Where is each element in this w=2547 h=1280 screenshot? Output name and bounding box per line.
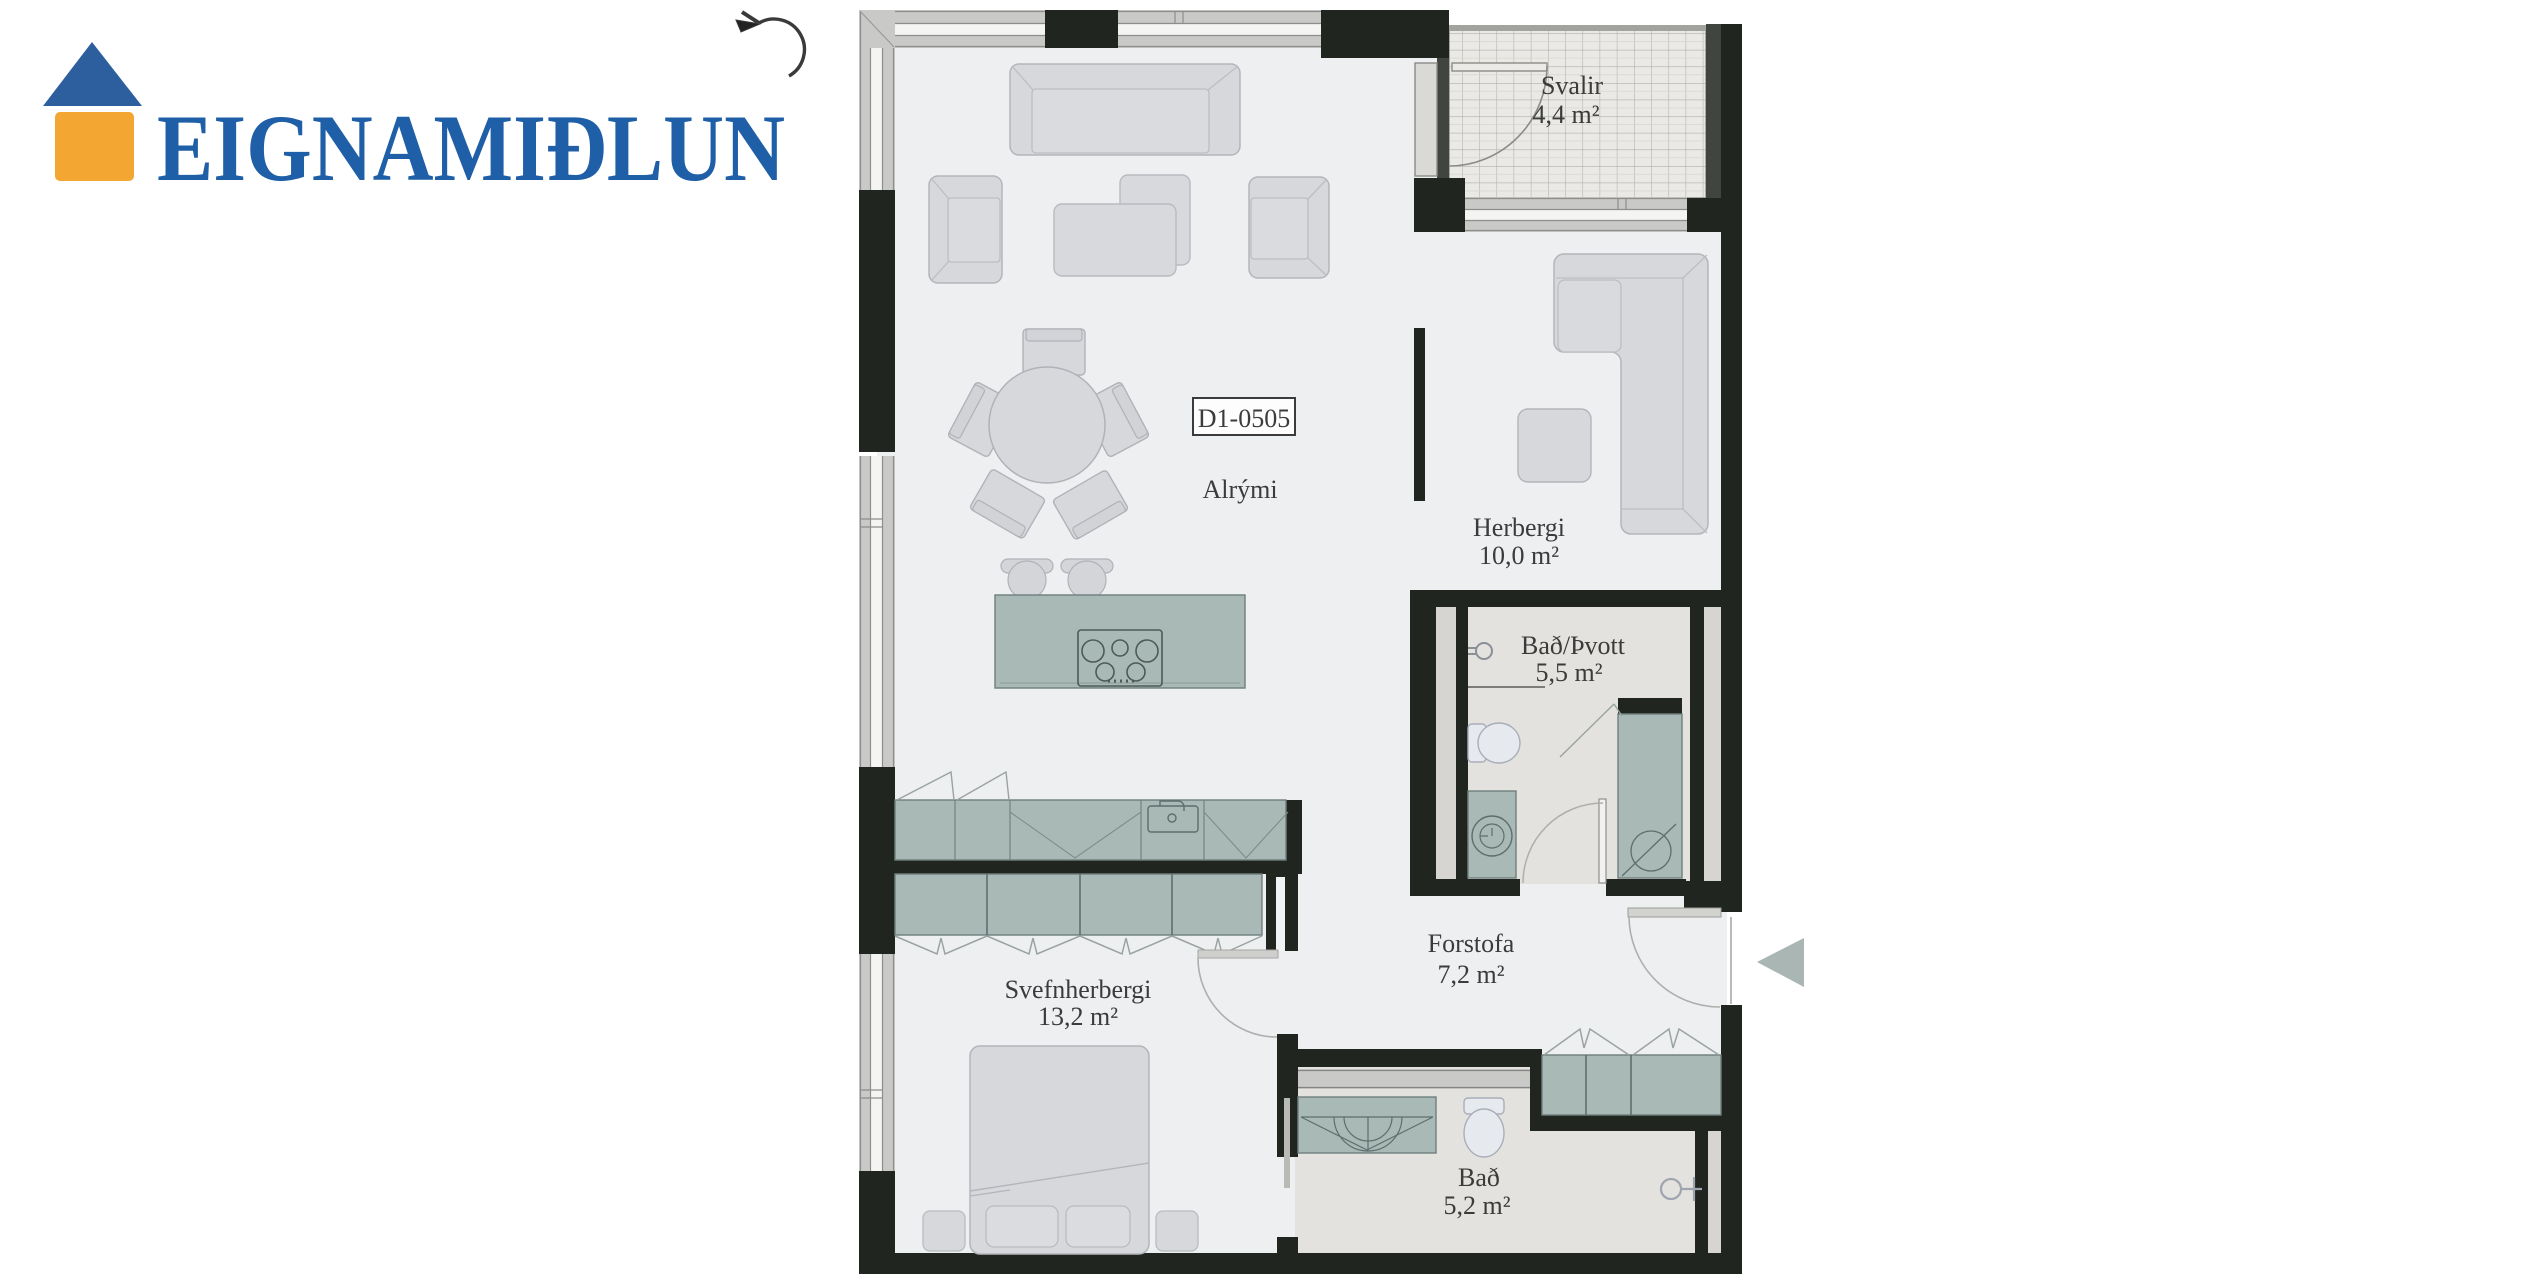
svg-text:13,2 m²: 13,2 m² — [1038, 1002, 1118, 1031]
svg-text:Alrými: Alrými — [1202, 475, 1277, 504]
svg-text:Svefnherbergi: Svefnherbergi — [1005, 975, 1152, 1004]
svg-text:Herbergi: Herbergi — [1473, 513, 1565, 542]
svg-text:5,5 m²: 5,5 m² — [1535, 658, 1602, 687]
svg-text:Bað: Bað — [1458, 1163, 1500, 1192]
svg-text:7,2 m²: 7,2 m² — [1437, 960, 1504, 989]
svg-text:Svalir: Svalir — [1541, 71, 1603, 100]
svg-text:Forstofa: Forstofa — [1428, 929, 1515, 958]
svg-text:5,2 m²: 5,2 m² — [1443, 1191, 1510, 1220]
svg-text:D1-0505: D1-0505 — [1198, 404, 1290, 433]
svg-text:4,4 m²: 4,4 m² — [1532, 100, 1599, 129]
svg-text:EIGNAMIÐLUN: EIGNAMIÐLUN — [157, 95, 785, 201]
svg-text:10,0 m²: 10,0 m² — [1479, 541, 1559, 570]
svg-text:Bað/Þvott: Bað/Þvott — [1521, 631, 1626, 660]
